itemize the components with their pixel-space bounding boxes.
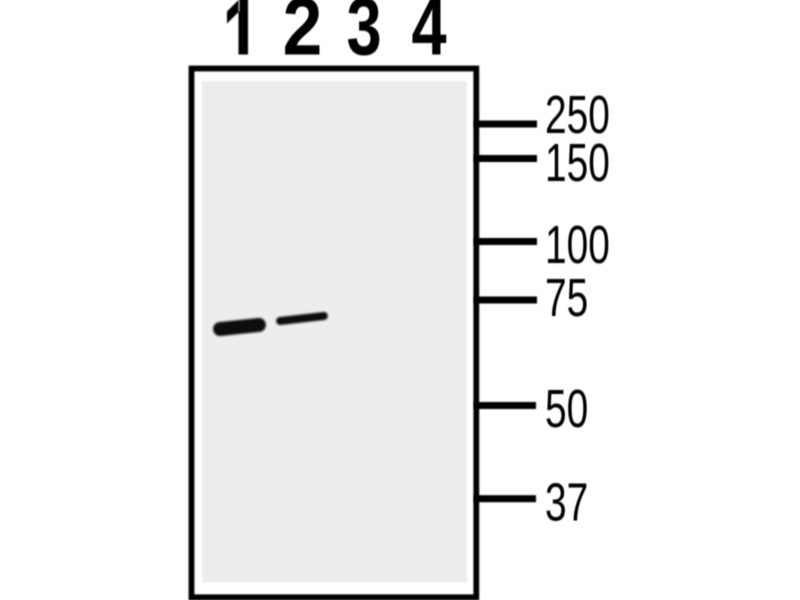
svg-text:3: 3 bbox=[346, 0, 381, 72]
svg-text:4: 4 bbox=[411, 0, 446, 72]
svg-text:50: 50 bbox=[545, 378, 588, 439]
svg-text:150: 150 bbox=[545, 132, 610, 193]
svg-text:37: 37 bbox=[545, 471, 588, 532]
svg-text:100: 100 bbox=[545, 214, 610, 275]
svg-text:2: 2 bbox=[283, 0, 323, 73]
svg-text:75: 75 bbox=[545, 267, 588, 328]
